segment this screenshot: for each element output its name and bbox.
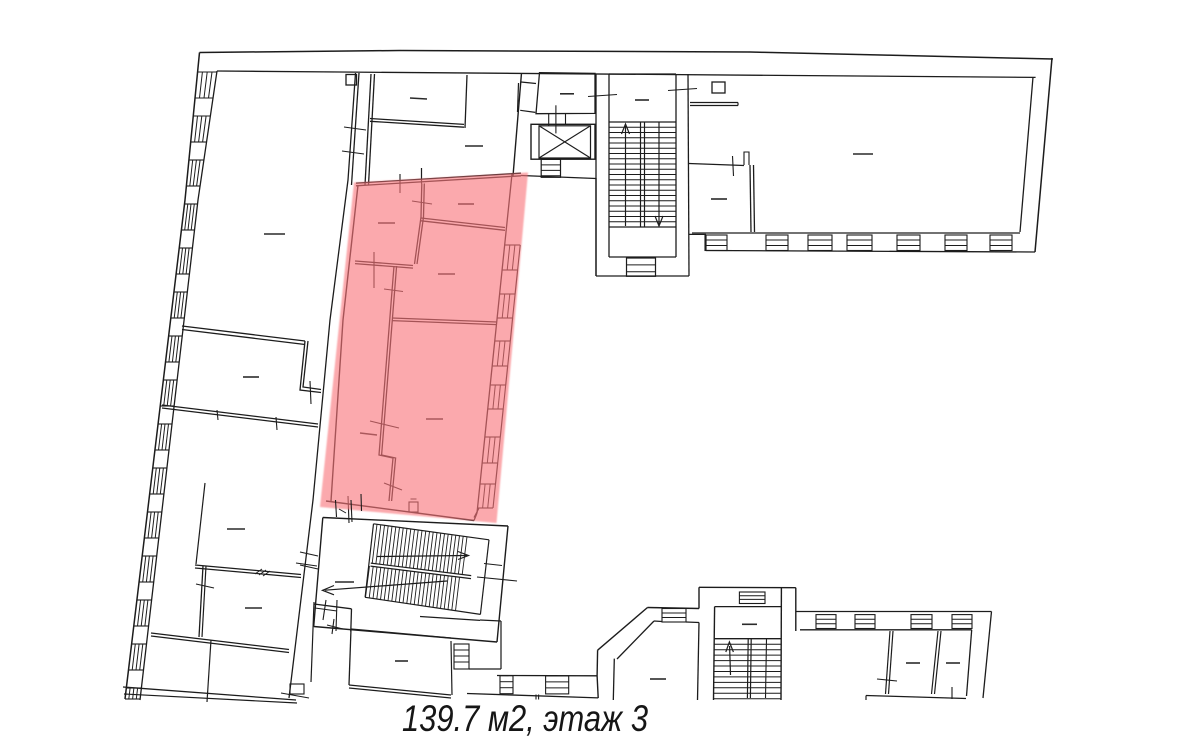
- svg-text:139.7 м2, этаж 3: 139.7 м2, этаж 3: [402, 698, 648, 739]
